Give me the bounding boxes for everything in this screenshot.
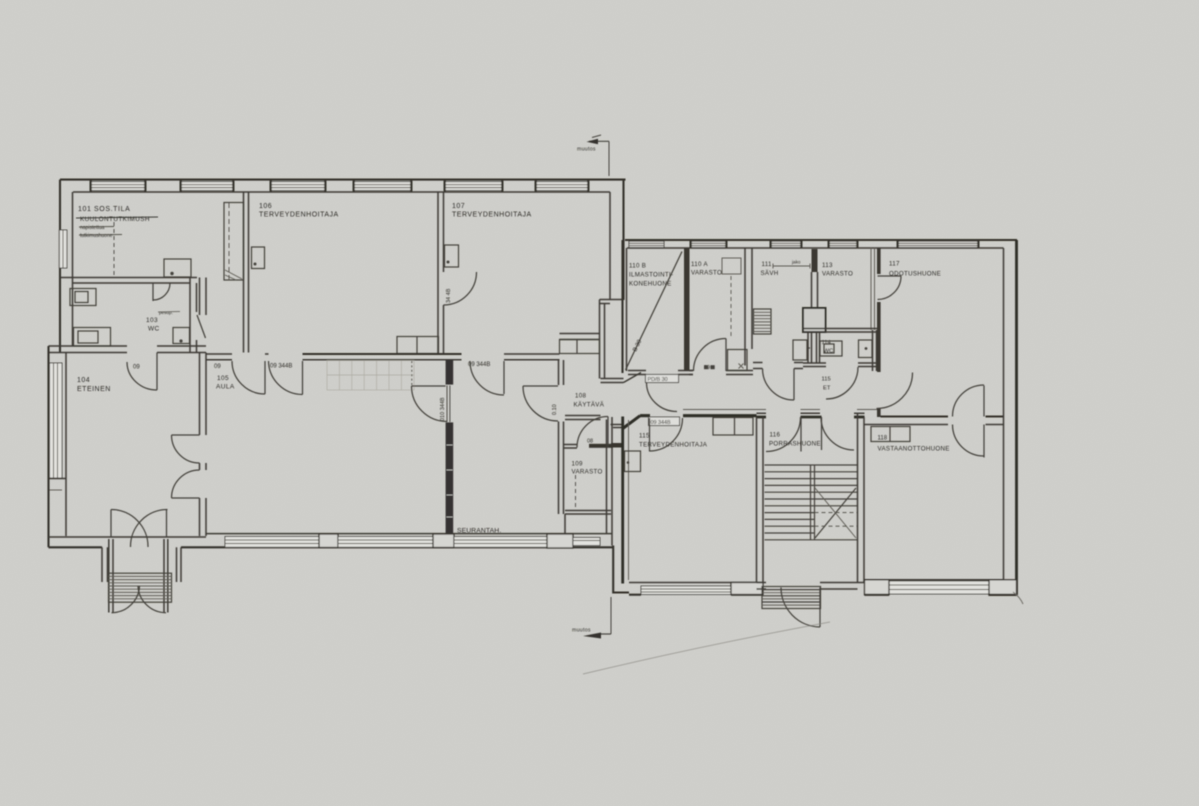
svg-text:PD/B 30: PD/B 30 xyxy=(648,377,668,383)
svg-text:PORRASHUONE: PORRASHUONE xyxy=(769,441,821,448)
svg-text:110 B: 110 B xyxy=(629,263,646,270)
svg-text:ILMASTOINTI-: ILMASTOINTI- xyxy=(629,272,673,279)
svg-text:09 344B: 09 344B xyxy=(468,362,490,368)
svg-text:ET: ET xyxy=(823,386,831,392)
svg-text:TERVEYDENHOITAJA: TERVEYDENHOITAJA xyxy=(452,212,532,219)
svg-text:115: 115 xyxy=(639,433,650,440)
svg-text:09: 09 xyxy=(214,364,221,370)
svg-text:115: 115 xyxy=(822,377,831,383)
svg-text:ETEINEN: ETEINEN xyxy=(77,386,111,393)
svg-text:VARASTO: VARASTO xyxy=(691,270,722,277)
svg-text:010 344B: 010 344B xyxy=(440,397,446,421)
svg-text:103: 103 xyxy=(146,317,158,324)
svg-text:09: 09 xyxy=(133,365,140,371)
svg-text:107: 107 xyxy=(452,203,465,210)
svg-text:VASTAANOTTOHUONE: VASTAANOTTOHUONE xyxy=(878,446,950,453)
svg-text:KÄYTÄVÄ: KÄYTÄVÄ xyxy=(574,402,605,409)
svg-text:118: 118 xyxy=(878,436,888,442)
svg-text:105: 105 xyxy=(217,375,229,382)
svg-text:09 344B: 09 344B xyxy=(270,364,292,370)
svg-text:WC: WC xyxy=(824,349,834,355)
svg-text:pesup.: pesup. xyxy=(159,310,173,315)
svg-text:113: 113 xyxy=(822,262,833,269)
svg-text:104: 104 xyxy=(77,377,90,384)
svg-text:09 344B: 09 344B xyxy=(651,420,671,426)
svg-text:jako: jako xyxy=(791,260,801,265)
svg-text:08: 08 xyxy=(587,439,593,445)
svg-text:110 A: 110 A xyxy=(691,261,708,268)
svg-text:AULA: AULA xyxy=(216,384,235,391)
svg-text:109: 109 xyxy=(572,461,583,468)
svg-text:muutos: muutos xyxy=(577,147,596,153)
svg-text:tutkimushuone: tutkimushuone xyxy=(80,233,113,239)
svg-text:napistettua: napistettua xyxy=(80,225,105,231)
svg-text:SÄVH: SÄVH xyxy=(761,270,779,277)
svg-text:108: 108 xyxy=(575,393,586,400)
svg-text:101 SOS.TILA: 101 SOS.TILA xyxy=(78,206,130,213)
svg-text:116: 116 xyxy=(770,432,781,439)
svg-text:111: 111 xyxy=(762,261,773,268)
svg-text:TERVEYDENHOITAJA: TERVEYDENHOITAJA xyxy=(259,212,339,219)
svg-text:34 4B: 34 4B xyxy=(446,288,452,303)
svg-text:106: 106 xyxy=(259,203,272,210)
svg-text:0.10: 0.10 xyxy=(552,404,558,415)
svg-text:WC: WC xyxy=(148,326,160,333)
svg-text:muutos: muutos xyxy=(572,628,591,634)
svg-text:117: 117 xyxy=(889,261,900,268)
svg-text:VARASTO: VARASTO xyxy=(572,469,603,476)
svg-text:VARASTO: VARASTO xyxy=(822,271,853,278)
